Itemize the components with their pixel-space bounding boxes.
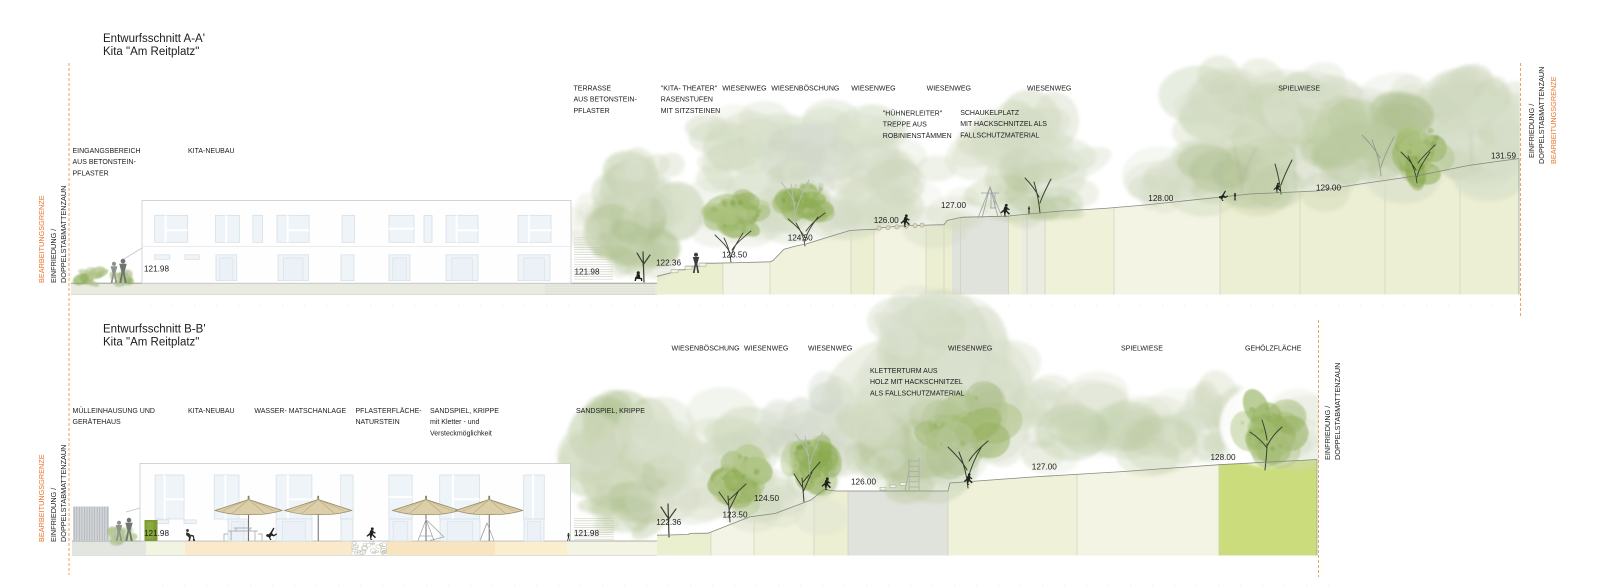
svg-text:121.98: 121.98 xyxy=(575,267,600,276)
svg-text:WIESENWEG: WIESENWEG xyxy=(948,345,992,352)
svg-text:BEARBEITUNGSGRENZE: BEARBEITUNGSGRENZE xyxy=(1549,76,1558,164)
svg-text:GEHÖLZFLÄCHE: GEHÖLZFLÄCHE xyxy=(1245,344,1302,352)
svg-text:WIESENWEG: WIESENWEG xyxy=(1027,85,1071,92)
svg-text:123.50: 123.50 xyxy=(722,251,747,260)
svg-text:KITA-NEUBAU: KITA-NEUBAU xyxy=(188,148,235,155)
svg-text:121.98: 121.98 xyxy=(144,529,169,538)
svg-text:128.00: 128.00 xyxy=(1148,194,1173,203)
svg-text:124.50: 124.50 xyxy=(754,494,779,503)
svg-text:EINFRIEDUNG /: EINFRIEDUNG / xyxy=(49,487,58,542)
svg-text:121.98: 121.98 xyxy=(144,265,169,274)
svg-text:SCHAUKELPLATZ: SCHAUKELPLATZ xyxy=(960,110,1020,117)
svg-text:ROBINIENSTÄMMEN: ROBINIENSTÄMMEN xyxy=(883,132,952,140)
svg-text:"HÜHNERLEITER": "HÜHNERLEITER" xyxy=(883,109,943,117)
svg-text:127.00: 127.00 xyxy=(1032,463,1057,472)
svg-text:WIESENWEG: WIESENWEG xyxy=(722,85,766,92)
svg-text:SPIELWIESE: SPIELWIESE xyxy=(1121,345,1163,352)
svg-text:123.50: 123.50 xyxy=(723,511,748,520)
svg-text:128.00: 128.00 xyxy=(1211,453,1236,462)
svg-text:121.98: 121.98 xyxy=(574,529,599,538)
svg-text:126.00: 126.00 xyxy=(851,478,876,487)
svg-text:EINFRIEDUNG /: EINFRIEDUNG / xyxy=(1527,103,1536,158)
svg-text:WIESENWEG: WIESENWEG xyxy=(927,85,971,92)
svg-text:EINGANGSBEREICH: EINGANGSBEREICH xyxy=(73,148,141,155)
svg-text:Entwurfsschnitt B-B': Entwurfsschnitt B-B' xyxy=(103,324,206,336)
svg-text:AUS BETONSTEIN-: AUS BETONSTEIN- xyxy=(574,97,638,104)
svg-text:HOLZ MIT HACKSCHNITZEL: HOLZ MIT HACKSCHNITZEL xyxy=(870,379,963,386)
svg-text:TERRASSE: TERRASSE xyxy=(574,85,612,92)
svg-text:Entwurfsschnitt A-A': Entwurfsschnitt A-A' xyxy=(103,33,205,45)
svg-text:127.00: 127.00 xyxy=(941,201,966,210)
svg-text:Kita "Am Reitplatz": Kita "Am Reitplatz" xyxy=(103,337,199,349)
svg-text:KLETTERTURM AUS: KLETTERTURM AUS xyxy=(870,368,938,375)
svg-text:Kita "Am Reitplatz": Kita "Am Reitplatz" xyxy=(103,46,199,58)
svg-text:AUS BETONSTEIN-: AUS BETONSTEIN- xyxy=(73,159,137,166)
svg-text:WIESENBÖSCHUNG: WIESENBÖSCHUNG xyxy=(771,84,839,92)
svg-text:EINFRIEDUNG /: EINFRIEDUNG / xyxy=(49,228,58,283)
svg-text:EINFRIEDUNG /: EINFRIEDUNG / xyxy=(1323,405,1332,460)
svg-text:FALLSCHUTZMATERIAL: FALLSCHUTZMATERIAL xyxy=(960,132,1039,139)
svg-text:DOPPELSTABMATTENZAUN: DOPPELSTABMATTENZAUN xyxy=(1537,67,1546,164)
svg-text:PFLASTER: PFLASTER xyxy=(574,108,610,115)
svg-text:SPIELWIESE: SPIELWIESE xyxy=(1278,85,1320,92)
svg-text:SANDSPIEL, KRIPPE: SANDSPIEL, KRIPPE xyxy=(576,408,645,415)
svg-text:BEARBEITUNGSGRENZE: BEARBEITUNGSGRENZE xyxy=(37,195,46,283)
svg-text:WIESENBÖSCHUNG: WIESENBÖSCHUNG xyxy=(672,344,740,352)
svg-text:129.00: 129.00 xyxy=(1316,183,1341,192)
svg-text:126.00: 126.00 xyxy=(874,216,899,225)
svg-text:RASENSTUFEN: RASENSTUFEN xyxy=(661,97,713,104)
svg-text:PFLASTERFLÄCHE-: PFLASTERFLÄCHE- xyxy=(356,407,423,415)
svg-text:MIT SITZSTEINEN: MIT SITZSTEINEN xyxy=(661,108,720,115)
svg-text:122.36: 122.36 xyxy=(656,259,681,268)
svg-text:MIT HACKSCHNITZEL ALS: MIT HACKSCHNITZEL ALS xyxy=(960,121,1047,128)
svg-text:SANDSPIEL, KRIPPE: SANDSPIEL, KRIPPE xyxy=(430,408,499,415)
svg-text:ALS FALLSCHUTZMATERIAL: ALS FALLSCHUTZMATERIAL xyxy=(870,390,965,397)
svg-text:BEARBEITUNGSGRENZE: BEARBEITUNGSGRENZE xyxy=(37,454,46,542)
svg-text:KITA-NEUBAU: KITA-NEUBAU xyxy=(188,408,235,415)
svg-text:Versteckmöglichkeit: Versteckmöglichkeit xyxy=(430,430,492,437)
svg-text:PFLASTER: PFLASTER xyxy=(73,170,109,177)
svg-text:MÜLLEINHAUSUNG UND: MÜLLEINHAUSUNG UND xyxy=(73,407,155,415)
svg-text:WASSER- MATSCHANLAGE: WASSER- MATSCHANLAGE xyxy=(254,408,346,415)
svg-text:131.59: 131.59 xyxy=(1491,152,1516,161)
svg-text:TREPPE AUS: TREPPE AUS xyxy=(883,122,927,129)
svg-text:124.50: 124.50 xyxy=(788,234,813,243)
svg-text:WIESENWEG: WIESENWEG xyxy=(851,85,895,92)
svg-text:GERÄTEHAUS: GERÄTEHAUS xyxy=(73,418,122,426)
svg-text:DOPPELSTABMATTENZAUN: DOPPELSTABMATTENZAUN xyxy=(1333,363,1342,460)
svg-text:WIESENWEG: WIESENWEG xyxy=(808,345,852,352)
svg-text:"KITA- THEATER": "KITA- THEATER" xyxy=(661,85,718,92)
svg-text:WIESENWEG: WIESENWEG xyxy=(744,345,788,352)
svg-text:NATURSTEIN: NATURSTEIN xyxy=(356,419,400,426)
svg-text:mit Kletter - und: mit Kletter - und xyxy=(430,419,480,426)
svg-text:DOPPELSTABMATTENZAUN: DOPPELSTABMATTENZAUN xyxy=(59,186,68,283)
svg-text:DOPPELSTABMATTENZAUN: DOPPELSTABMATTENZAUN xyxy=(59,445,68,542)
svg-text:122.36: 122.36 xyxy=(656,518,681,527)
